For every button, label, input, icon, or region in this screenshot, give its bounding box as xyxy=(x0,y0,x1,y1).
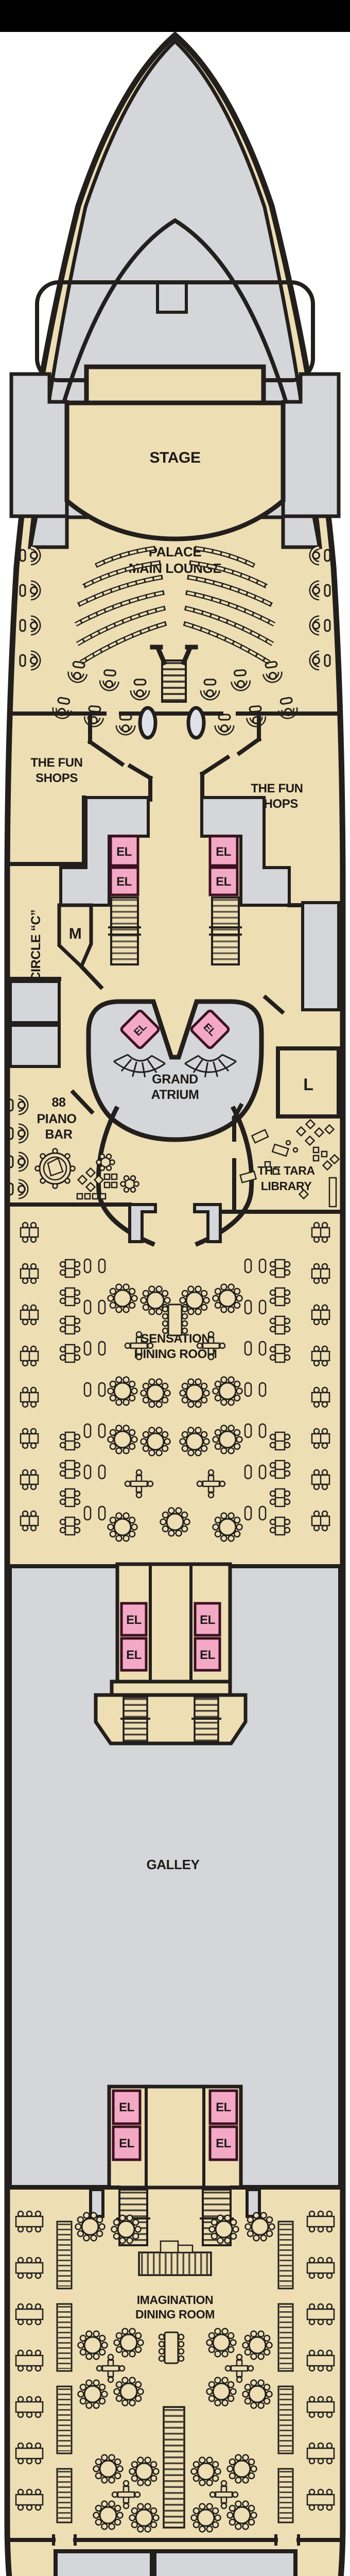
chair xyxy=(286,1141,290,1145)
elevator-label: EL xyxy=(216,2100,231,2114)
bench xyxy=(84,1342,91,1355)
table xyxy=(313,1156,319,1161)
stairs-upper-left xyxy=(108,897,141,964)
table xyxy=(112,1182,117,1188)
pillar xyxy=(140,708,155,738)
long-table xyxy=(16,2443,43,2464)
elevator-label: EL xyxy=(116,845,132,859)
elevator-label: EL xyxy=(216,845,231,859)
bench xyxy=(99,1342,105,1355)
bench xyxy=(84,1506,91,1520)
stage-floor xyxy=(67,403,283,539)
elevator-label: EL xyxy=(119,2100,134,2114)
bench xyxy=(84,1465,91,1479)
elevator-label: EL xyxy=(116,875,132,889)
bench xyxy=(99,1300,105,1314)
long-table xyxy=(16,2258,43,2278)
elevator-label: EL xyxy=(126,1648,142,1662)
deck-plan-page: STAGE PALACE MAIN LOUNGE xyxy=(0,0,350,2576)
palace-label-2: MAIN LOUNGE xyxy=(129,561,222,576)
bench xyxy=(84,1424,91,1437)
elevator-bank-mid: EL EL EL EL xyxy=(96,1564,246,1743)
table xyxy=(313,1147,319,1153)
landing xyxy=(112,1682,230,1695)
long-table xyxy=(16,2397,43,2417)
table xyxy=(112,1174,117,1179)
buffet-counter xyxy=(57,2304,72,2371)
sensation-label-2: DINING ROOM xyxy=(134,1347,217,1361)
table xyxy=(265,1162,270,1167)
imagination-label-2: DINING ROOM xyxy=(135,2308,215,2321)
galley-label: GALLEY xyxy=(146,1857,199,1872)
bench xyxy=(84,1383,91,1396)
top-bar xyxy=(0,0,350,32)
long-table xyxy=(16,2350,43,2371)
table xyxy=(93,1194,98,1199)
circle-c-label: CIRCLE “C” xyxy=(29,909,43,981)
buffet-counter xyxy=(57,2386,72,2453)
bench xyxy=(99,1259,105,1273)
stern-room-left xyxy=(56,2551,152,2576)
stage-area: STAGE xyxy=(67,367,283,539)
bench xyxy=(99,1465,105,1479)
elevator-label: EL xyxy=(200,1613,215,1627)
room-l-label: L xyxy=(303,1075,313,1094)
stage-back xyxy=(86,367,264,403)
piano xyxy=(36,1149,75,1189)
bench xyxy=(99,1383,105,1396)
table xyxy=(322,1151,327,1157)
elevator-bank-lower: EL EL EL EL xyxy=(109,2087,241,2188)
long-table xyxy=(16,2304,43,2325)
piano-bar-label-2: PIANO xyxy=(37,1112,76,1126)
bench xyxy=(84,1300,91,1314)
imagination-label-1: IMAGINATION xyxy=(137,2293,214,2307)
bench xyxy=(99,1506,105,1520)
room-m-label: M xyxy=(69,925,82,942)
elevator-label: EL xyxy=(216,875,231,889)
elevator-label: EL xyxy=(126,1613,142,1627)
service-room xyxy=(10,1025,59,1066)
buffet-counter xyxy=(57,2222,72,2289)
atrium-label-1: GRAND xyxy=(152,1072,198,1087)
palace-label-1: PALACE xyxy=(149,544,202,560)
stern-room-right xyxy=(154,2551,312,2576)
elevator-label: EL xyxy=(216,2137,231,2150)
stage-label: STAGE xyxy=(149,449,200,466)
bench xyxy=(99,1424,105,1437)
piano-bar-label-1: 88 xyxy=(51,1095,66,1110)
stair-house xyxy=(96,1695,246,1743)
atrium-label-2: ATRIUM xyxy=(151,1088,199,1102)
table xyxy=(77,1194,82,1199)
elevator-label: EL xyxy=(119,2137,134,2150)
fun-shops-left-label-2: SHOPS xyxy=(36,771,78,785)
long-table xyxy=(16,2211,43,2232)
piano-bar-label-3: BAR xyxy=(45,1127,73,1142)
table xyxy=(273,1169,278,1174)
fun-shops-left-label-1: THE FUN xyxy=(30,756,82,770)
stairs-upper-right xyxy=(209,897,242,964)
pillar xyxy=(188,708,204,738)
library-shelf xyxy=(329,1178,336,1207)
fun-shops-right-label-1: THE FUN xyxy=(251,782,303,795)
long-table xyxy=(16,2489,43,2510)
table xyxy=(100,1194,106,1199)
service-corridor-right xyxy=(303,903,339,1010)
table xyxy=(85,1194,90,1199)
bench xyxy=(84,1259,91,1273)
service-room xyxy=(10,981,59,1023)
elevator-label: EL xyxy=(200,1648,215,1662)
table xyxy=(104,1174,110,1179)
table xyxy=(104,1182,110,1188)
central-buffet xyxy=(164,2407,184,2528)
deck-plan: STAGE PALACE MAIN LOUNGE xyxy=(0,0,350,2576)
buffet-counter xyxy=(57,2469,72,2522)
chair xyxy=(293,1148,297,1152)
